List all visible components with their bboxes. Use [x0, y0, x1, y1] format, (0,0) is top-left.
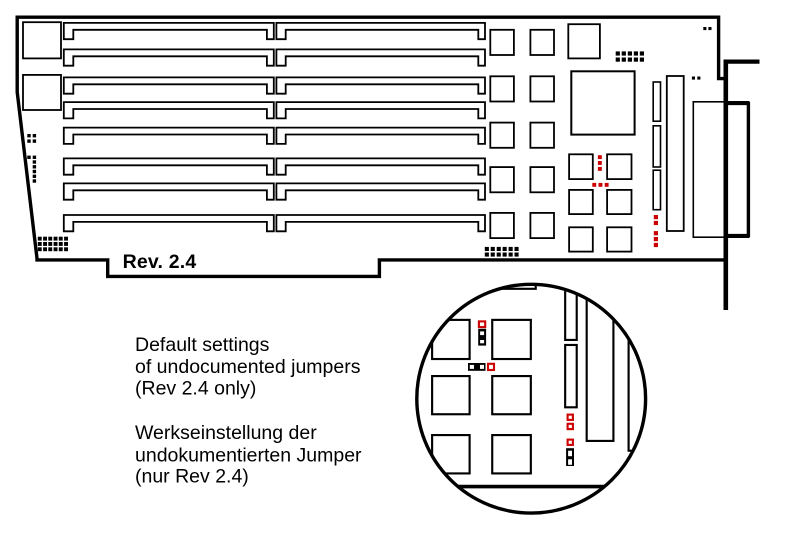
svg-text:of undocumented jumpers: of undocumented jumpers — [135, 356, 361, 378]
svg-text:Default settings: Default settings — [135, 334, 270, 356]
svg-text:(Rev 2.4 only): (Rev 2.4 only) — [135, 378, 256, 400]
svg-text:Werkseinstellung der: Werkseinstellung der — [135, 422, 317, 444]
svg-text:(nur Rev 2.4): (nur Rev 2.4) — [135, 466, 249, 488]
svg-text:undokumentierten Jumper: undokumentierten Jumper — [135, 444, 362, 466]
svg-text:Rev. 2.4: Rev. 2.4 — [123, 251, 197, 273]
